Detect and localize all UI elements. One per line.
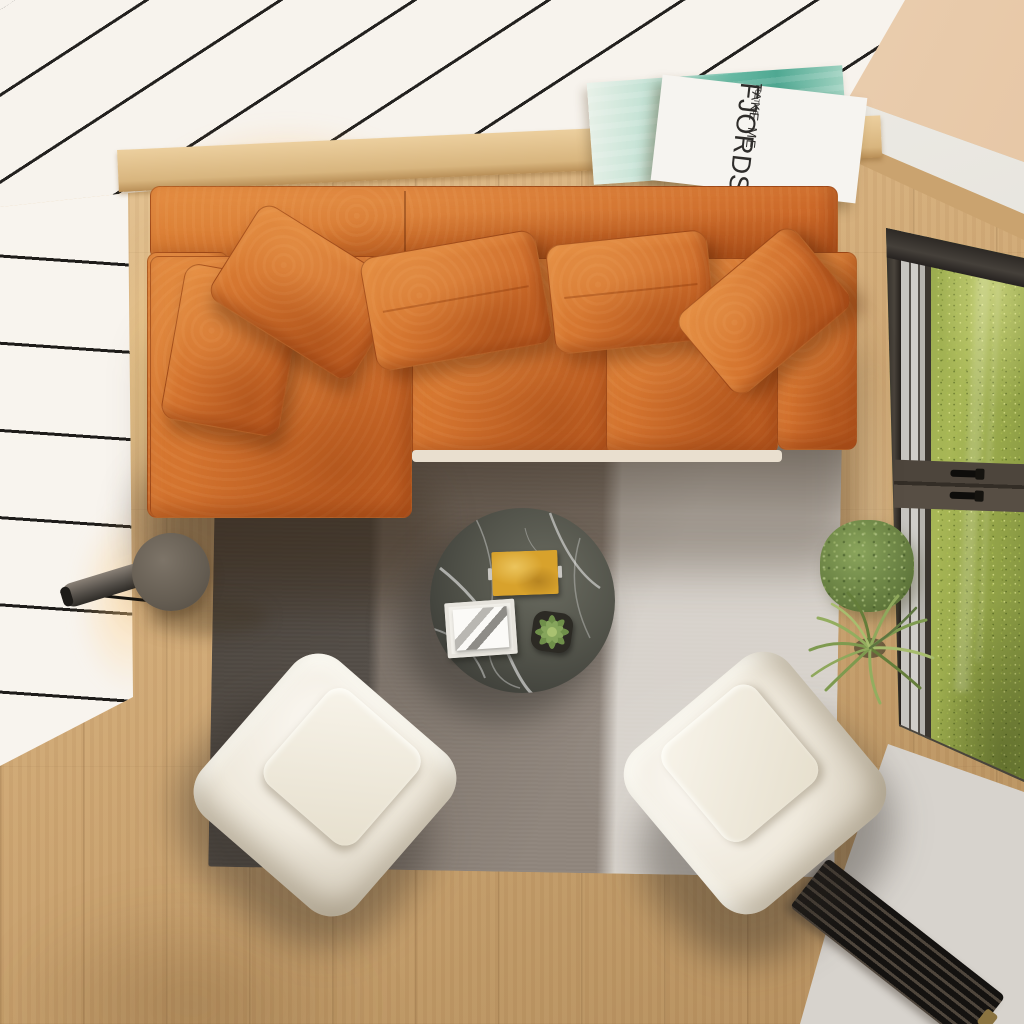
handle-knob [974, 490, 983, 501]
marble-veins [430, 508, 615, 693]
window-transom-bar [893, 460, 1024, 513]
magazine [453, 606, 510, 651]
poster-line-3: FJORDS [722, 81, 765, 195]
backrest-seam [404, 191, 406, 257]
window-handle-lower [950, 492, 982, 500]
handle-knob [975, 468, 984, 479]
succulent-plant [528, 608, 576, 656]
window-handle-upper [950, 470, 982, 478]
grass-plant [798, 578, 943, 713]
lamp-base [132, 533, 210, 611]
living-room-render: TAKE ME TO THE FJORDS [0, 0, 1024, 1024]
tray-handle-right [558, 566, 562, 578]
poster-text: TAKE ME TO THE FJORDS [753, 84, 765, 193]
yellow-tray [491, 550, 558, 596]
sofa-base-strip [412, 450, 782, 462]
marble-coffee-table [430, 508, 615, 693]
tray-handle-left [488, 568, 492, 580]
white-tray [444, 599, 518, 659]
